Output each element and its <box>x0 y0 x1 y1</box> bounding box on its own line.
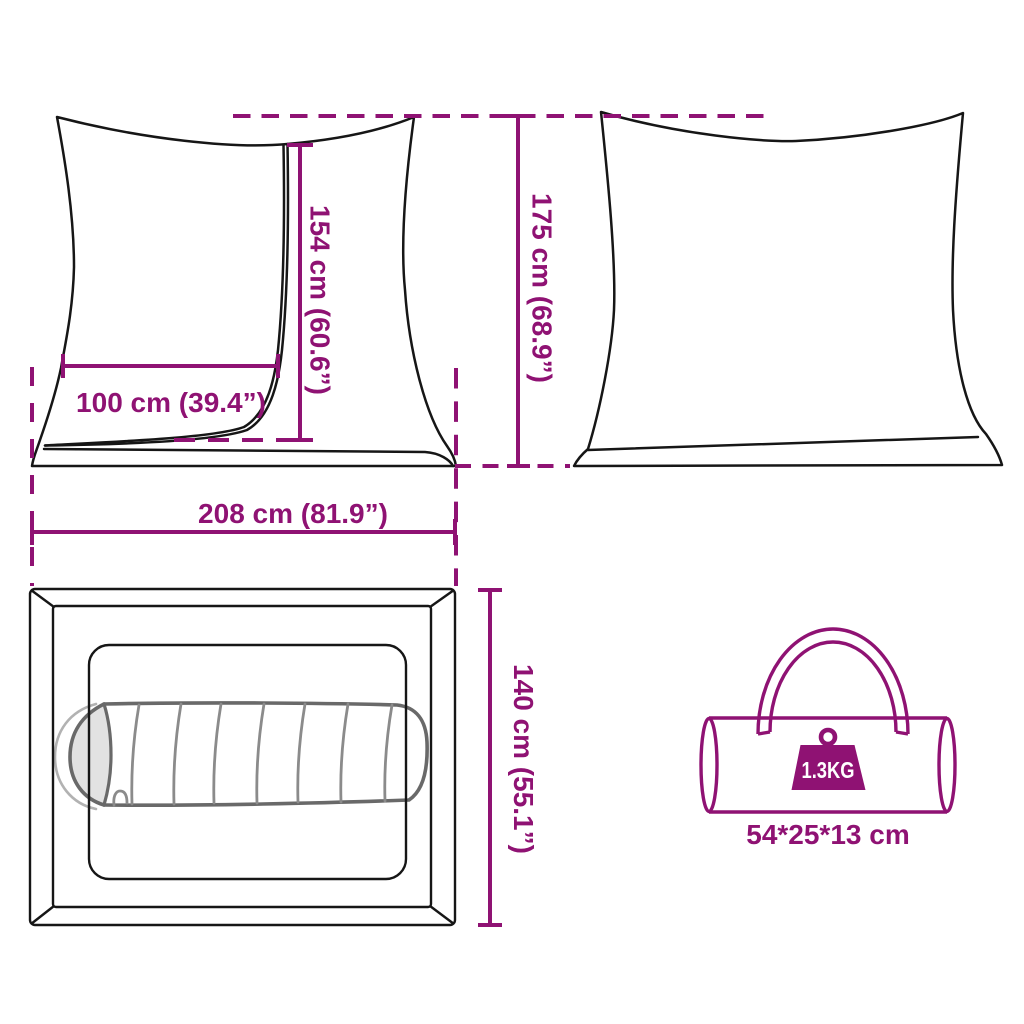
svg-text:154 cm (60.6”): 154 cm (60.6”) <box>305 205 336 395</box>
svg-text:100 cm (39.4”): 100 cm (39.4”) <box>76 387 266 418</box>
svg-text:54*25*13 cm: 54*25*13 cm <box>746 819 909 850</box>
svg-text:1.3KG: 1.3KG <box>802 757 855 783</box>
svg-text:208 cm (81.9”): 208 cm (81.9”) <box>198 498 388 529</box>
svg-text:140 cm (55.1”): 140 cm (55.1”) <box>508 664 539 854</box>
svg-text:175 cm (68.9”): 175 cm (68.9”) <box>527 193 558 383</box>
